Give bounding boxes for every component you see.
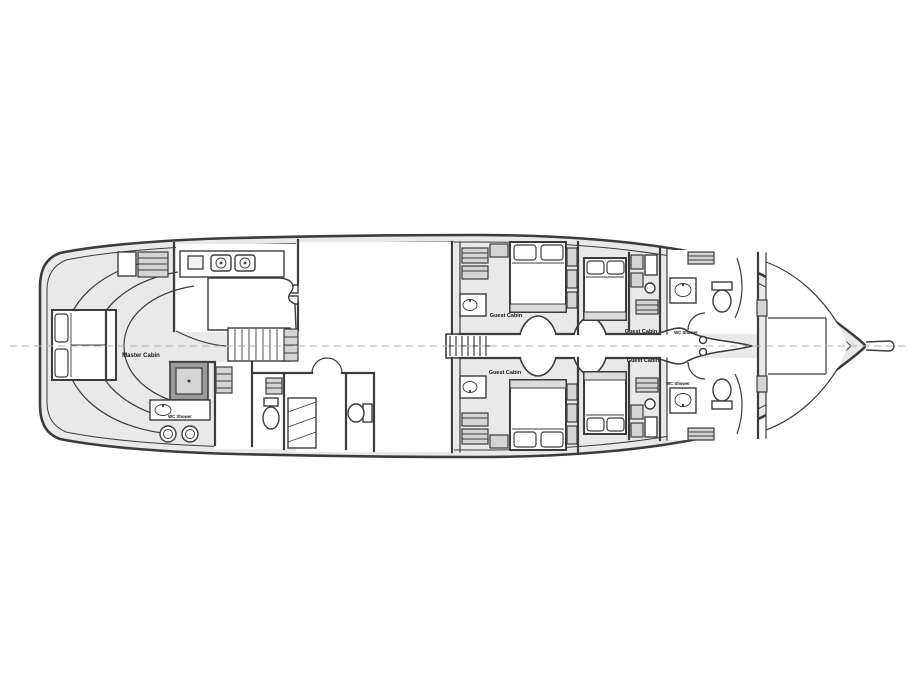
sink-icon [670,278,696,303]
guest-cabin-fwd-bottom-label: Guest Cabin [627,358,660,364]
master-nightstand [118,252,136,276]
guest-cabin-aft-top [460,242,577,316]
lobby-sink-icon-top [700,337,707,344]
crew-cabinet-icon-2 [266,378,282,394]
shower-icon-aft [170,362,208,400]
master-bed-icon [52,310,116,380]
wc-shower-fwd-bottom-label: WC Shower [666,381,690,386]
cabinet-icon [688,252,714,264]
stair-landing-hatch [284,329,298,361]
toilet-icon [712,379,732,409]
toilet-icon [712,282,732,312]
bed-icon [584,258,626,320]
stairs-icon-aft [228,328,290,361]
stool-icon-2 [182,426,198,442]
bed-icon [584,372,626,434]
stove-icon-2 [235,255,255,271]
guest-cabin-aft-bottom [460,376,577,450]
guest-cabin-fwd-bottom [584,372,658,437]
master-cabinet-icon [138,252,168,277]
wc-shower-aft-label: WC Shower [168,414,192,419]
desk-stool-icon [645,255,657,293]
desk-stool-icon [645,399,657,437]
closet-icon [462,248,488,279]
toilet-icon-crew-2 [348,404,372,422]
guest-cabin-aft-bottom-label: Guest Cabin [489,370,522,376]
stool-icon-1 [160,426,176,442]
cabinet-icon [490,244,508,257]
cabinet-icon [688,428,714,440]
dinette-counter [208,278,296,330]
guest-cabin-fwd-top [584,255,658,320]
yacht-deck-plan-page: Master Cabin Guest Cabin Guest Cabin Gue… [0,0,920,690]
crew-bunk-icon [288,398,316,448]
vanity-sink-icon [460,376,486,398]
sink-icon [670,388,696,413]
divider-cabinet-icon [567,384,577,444]
vanity-sink-icon [460,294,486,316]
bed-icon [510,242,566,312]
toilet-icon-crew-1 [263,398,279,429]
master-cabin-label: Master Cabin [122,353,160,359]
divider-cabinet-icon [567,248,577,308]
stove-icon [211,255,231,271]
guest-cabin-aft-top-label: Guest Cabin [490,313,523,319]
guest-cabin-fwd-top-label: Guest Cabin [625,329,658,335]
deck-plan-svg: Master Cabin Guest Cabin Guest Cabin Gue… [0,0,920,690]
galley-sink-unit [188,256,203,269]
crew-cabinet-icon-1 [216,367,232,393]
aft-stairs [228,328,298,361]
wc-shower-fwd-top-label: WC Shower [674,330,698,335]
bed-icon [510,380,566,450]
cabinet-icon [490,435,508,448]
lobby-sink-icon-bottom [700,349,707,356]
closet-icon [462,413,488,444]
